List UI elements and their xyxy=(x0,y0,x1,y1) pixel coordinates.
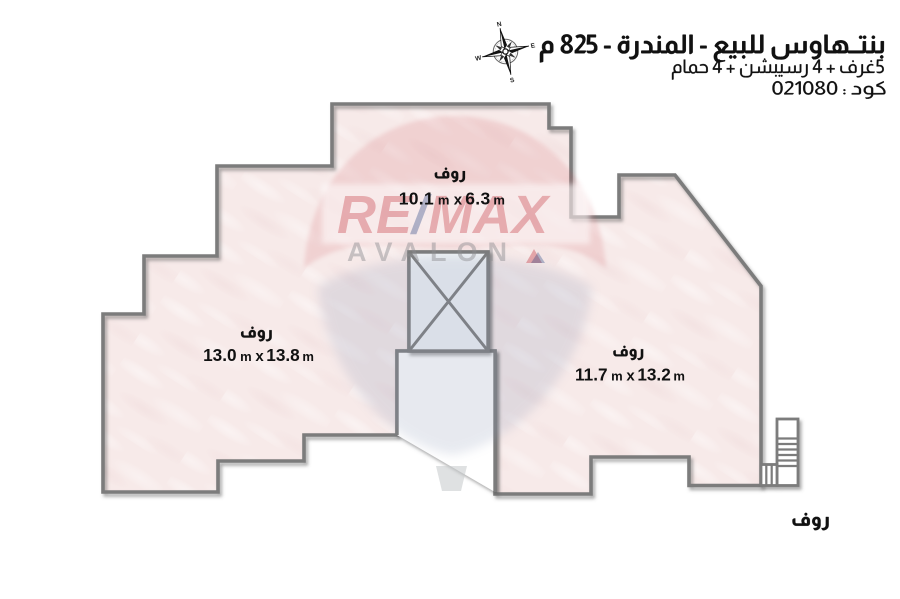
svg-text:N: N xyxy=(496,21,502,29)
svg-text:AVALON: AVALON xyxy=(347,237,517,267)
svg-text:W: W xyxy=(475,54,483,62)
svg-text:E: E xyxy=(530,42,536,50)
svg-text:11.7 m x 13.2 m: 11.7 m x 13.2 m xyxy=(575,365,685,385)
svg-text:13.0 m x 13.8 m: 13.0 m x 13.8 m xyxy=(203,345,314,365)
svg-text:S: S xyxy=(509,77,515,85)
